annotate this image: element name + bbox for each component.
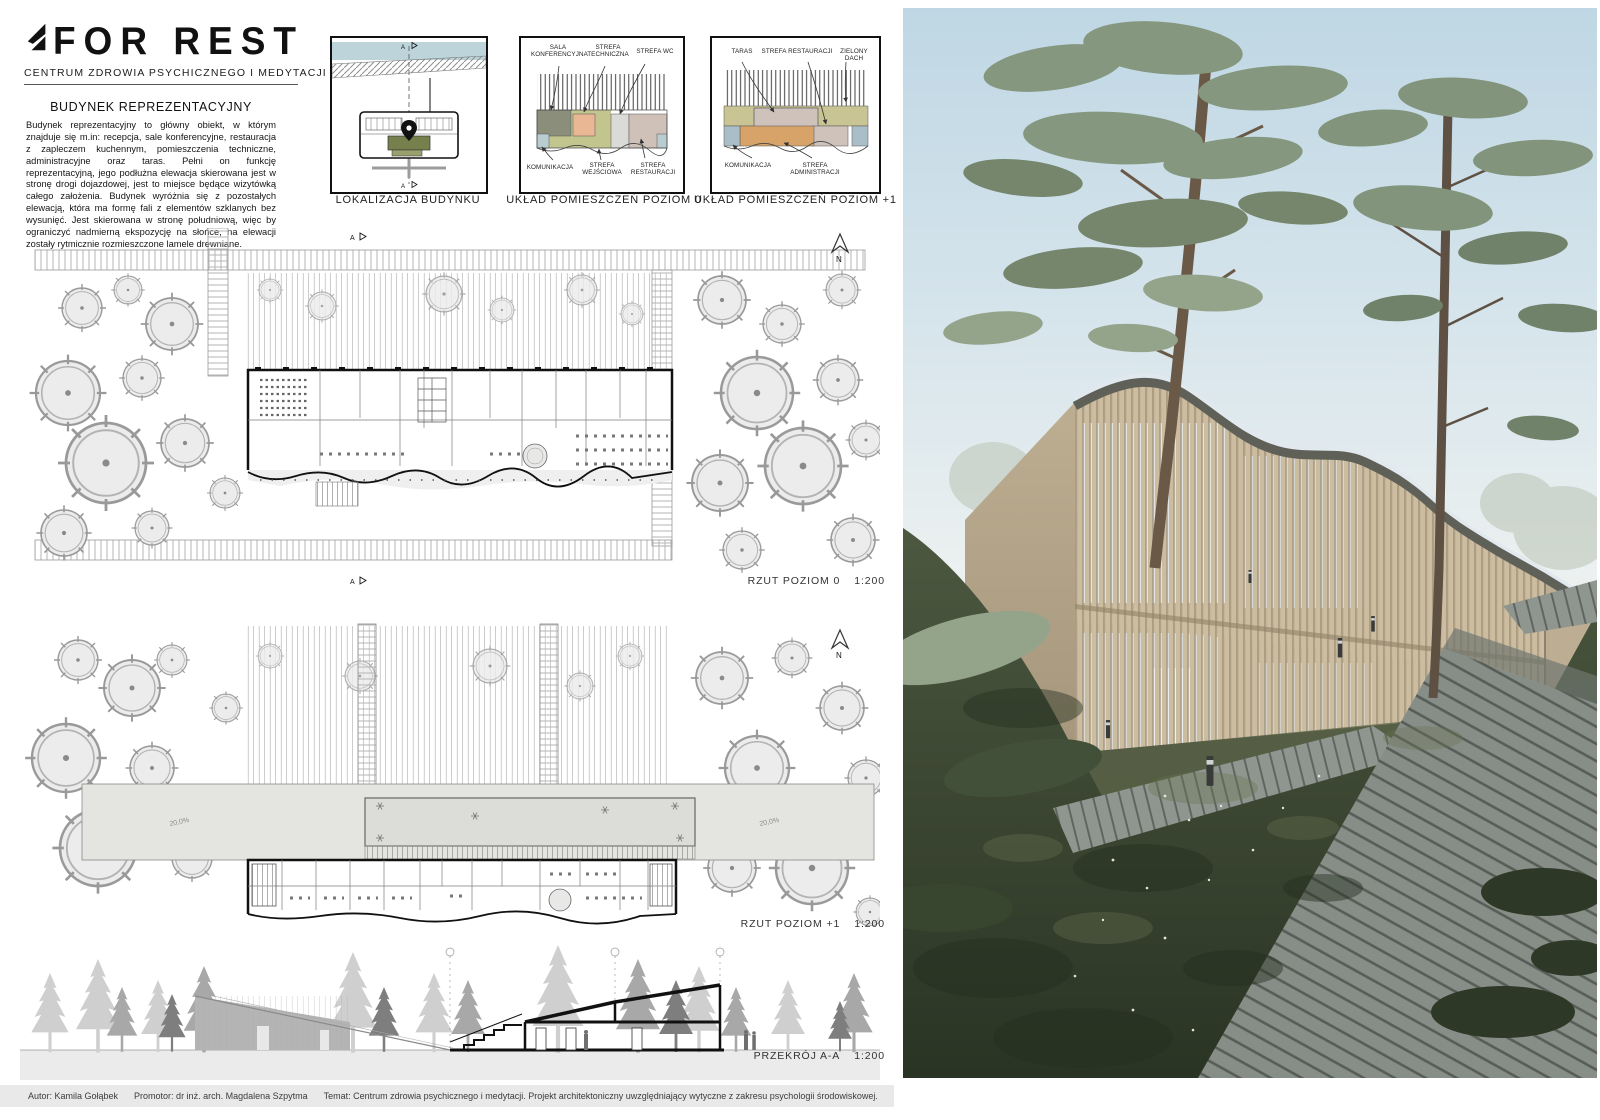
plan1-caption: RZUT POZIOM +11:200 (710, 918, 885, 930)
footer-promoter: Promotor: dr inż. arch. Magdalena Szpytm… (134, 1091, 308, 1101)
plan1-building (248, 860, 676, 924)
section-cut (446, 948, 756, 1050)
label-sala-konferencyjna: SALA KONFERENCYJNA (531, 44, 585, 59)
diagram-level0: SALA KONFERENCYJNA STREFA TECHNICZNA STR… (519, 36, 685, 194)
svg-text:N: N (836, 255, 842, 264)
footer-credits: Autor: Kamila Gołąbek Promotor: dr inż. … (0, 1085, 894, 1107)
plan1-green-roof: 20,0% 20,0% (82, 784, 874, 860)
bollard-light (1249, 570, 1252, 583)
plan0-caption-label: RZUT POZIOM 0 (748, 575, 841, 587)
svg-text:A: A (401, 184, 405, 190)
diagram-location-caption: LOKALIZACJA BUDYNKU (308, 194, 508, 206)
logo-tagline: CENTRUM ZDROWIA PSYCHICZNEGO I MEDYTACJI (24, 67, 304, 79)
plan0-caption: RZUT POZIOM 01:200 (720, 575, 885, 587)
location-diagram-drawing: A A (332, 38, 486, 192)
diagram-level1-caption: UKŁAD POMIESZCZEŃ POZIOM +1 (694, 194, 894, 206)
section-caption-scale: 1:200 (854, 1050, 885, 1062)
label-strefa-wejsciowa: STREFA WEJŚCIOWA (579, 162, 625, 177)
bollard-light (1371, 616, 1375, 632)
intro-heading: BUDYNEK REPREZENTACYJNY (26, 100, 276, 114)
svg-text:A: A (350, 579, 355, 586)
section-elevation (195, 992, 453, 1050)
plan1-trees-right (691, 638, 880, 926)
north-arrow-icon: N (832, 630, 848, 660)
section-caption: PRZEKRÓJ A-A1:200 (725, 1050, 885, 1062)
plan0-caption-scale: 1:200 (854, 575, 885, 587)
svg-text:N: N (836, 651, 842, 660)
label-strefa-administracji: STREFA ADMINISTRACJI (786, 162, 844, 177)
section-trees-light (31, 945, 805, 1053)
label-strefa-restauracji: STREFA RESTAURACJI (760, 48, 834, 55)
render-visualization (903, 8, 1597, 1078)
diagram-level1: TARAS STREFA RESTAURACJI ZIELONY DACH KO… (710, 36, 881, 194)
logo-rule (24, 84, 298, 85)
floor-plan-level1: 20,0% 20,0% N (20, 616, 880, 926)
floor-plan-level0: A A N (20, 228, 880, 588)
plan1-caption-label: RZUT POZIOM +1 (741, 918, 841, 930)
label-strefa-restauracji: STREFA RESTAURACJI (627, 162, 679, 177)
label-zielony-dach: ZIELONY DACH (832, 48, 876, 63)
plan1-caption-scale: 1:200 (854, 918, 885, 930)
bollard-light (1106, 720, 1110, 738)
footer-author: Autor: Kamila Gołąbek (28, 1091, 118, 1101)
svg-text:A: A (401, 45, 405, 51)
svg-text:A: A (350, 235, 355, 242)
bollard-light (1338, 638, 1343, 658)
plan0-trees-right (686, 271, 880, 573)
logo: FOR REST CENTRUM ZDROWIA PSYCHICZNEGO I … (24, 14, 304, 85)
section-caption-label: PRZEKRÓJ A-A (754, 1050, 841, 1062)
bollard-light (1207, 756, 1214, 786)
logo-tree-icon (24, 14, 53, 60)
plan0-building (248, 370, 672, 506)
label-strefa-techniczna: STREFA TECHNICZNA (585, 44, 631, 59)
footer-subject: Temat: Centrum zdrowia psychicznego i me… (324, 1091, 878, 1101)
diagram-location: A A (330, 36, 488, 194)
diagram-level0-caption: UKŁAD POMIESZCZEŃ POZIOM 0 (504, 194, 704, 206)
label-komunikacja: KOMUNIKACJA (523, 164, 577, 171)
label-strefa-wc: STREFA WC (633, 48, 677, 55)
label-taras: TARAS (726, 48, 758, 55)
label-komunikacja: KOMUNIKACJA (722, 162, 774, 169)
logo-title: FOR REST (53, 22, 304, 60)
